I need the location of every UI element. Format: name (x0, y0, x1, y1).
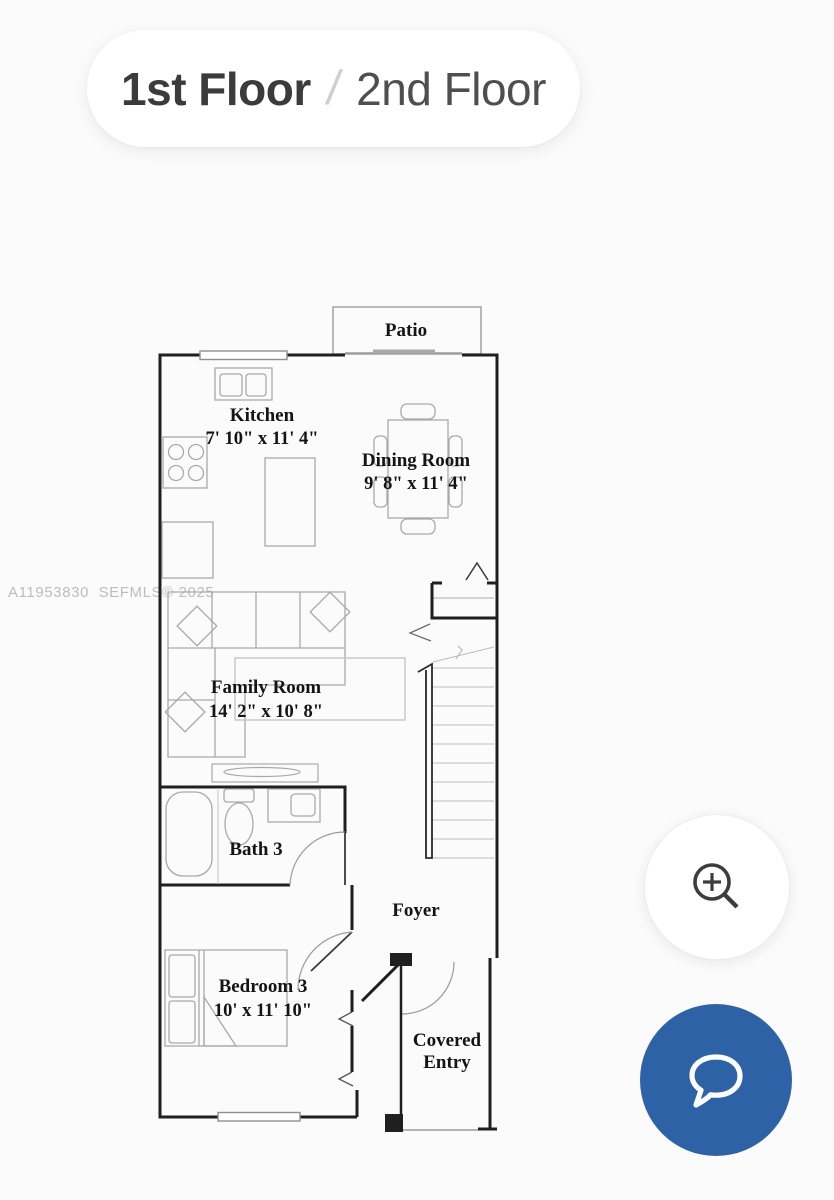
label-family-room: Family Room (211, 677, 321, 698)
stairs (418, 563, 494, 858)
sectional-sofa (165, 592, 350, 757)
label-foyer: Foyer (392, 900, 440, 921)
bath-door (290, 832, 345, 885)
dims-kitchen: 7' 10" x 11' 4" (205, 429, 318, 449)
dims-bedroom-3: 10' x 11' 10" (214, 1001, 312, 1021)
console-table (212, 764, 318, 782)
kitchen-sink (215, 368, 272, 400)
outer-walls (160, 355, 497, 1129)
stove (163, 437, 207, 488)
front-door (362, 953, 454, 1014)
bathtub (166, 788, 218, 884)
label-covered-entry-line1: Covered (413, 1030, 482, 1051)
sliding-door (345, 350, 462, 354)
label-kitchen: Kitchen (230, 405, 295, 426)
zoom-in-button[interactable] (644, 814, 790, 960)
kitchen-island (265, 458, 315, 546)
kitchen-cabinet (162, 522, 213, 578)
label-bedroom-3: Bedroom 3 (219, 976, 308, 997)
bed (165, 950, 287, 1046)
toilet (224, 789, 254, 845)
bath-vanity (268, 789, 320, 822)
label-covered-entry-line2: Entry (423, 1052, 471, 1073)
label-dining-room: Dining Room (362, 450, 470, 471)
dims-family-room: 14' 2" x 10' 8" (209, 702, 323, 722)
zoom-in-icon (686, 856, 748, 918)
dims-dining-room: 9' 8" x 11' 4" (364, 474, 468, 494)
chat-button[interactable] (640, 1004, 792, 1156)
label-bath-3: Bath 3 (229, 839, 282, 860)
room-labels: Patio Kitchen 7' 10" x 11' 4" Dining Roo… (205, 320, 481, 1073)
label-patio: Patio (385, 320, 427, 341)
closet (410, 583, 497, 641)
chat-icon (684, 1049, 748, 1111)
